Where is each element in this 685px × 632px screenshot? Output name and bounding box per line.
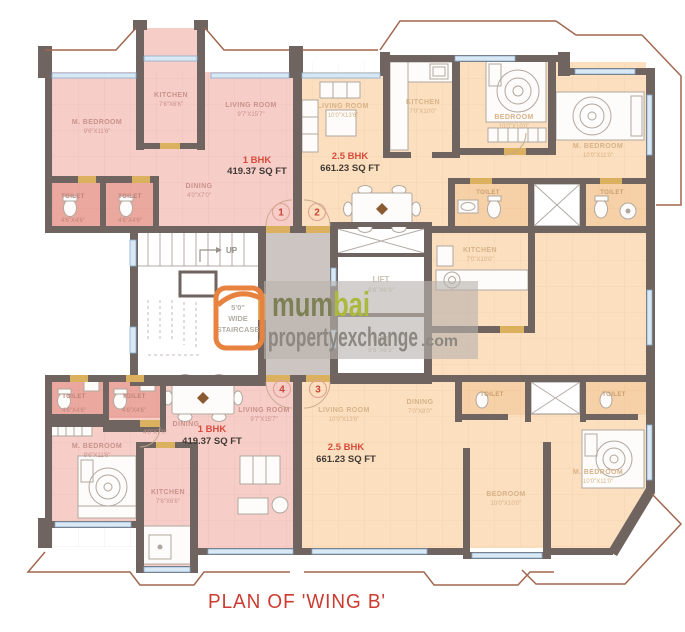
bed-flat4 bbox=[78, 456, 136, 518]
f2-type: 2.5 BHK bbox=[332, 151, 369, 162]
room-dim-f3-bedroom: 10'0"X10'0" bbox=[491, 501, 522, 507]
room-label-f4-living: LIVING ROOM bbox=[238, 407, 289, 414]
room-label-f3-toilet2: TOILET bbox=[602, 392, 626, 398]
room-label-f2-toilet2: TOILET bbox=[600, 190, 624, 196]
room-dim-f2-kitchen: 7'0"X10'0" bbox=[409, 109, 436, 115]
stair-label-2: WIDE bbox=[228, 314, 248, 323]
f1-area: 419.37 SQ FT bbox=[227, 166, 287, 177]
room-label-f3-toilet1: TOILET bbox=[480, 392, 504, 398]
floor-plan-svg: UP bbox=[0, 0, 685, 632]
room-dim-f4-toilet1: 4'6"X4'6" bbox=[62, 408, 86, 414]
room-dim-f1-kitchen: 7'6"X6'6" bbox=[159, 102, 183, 108]
up-label: UP bbox=[226, 246, 238, 255]
f4-type: 1 BHK bbox=[198, 424, 227, 435]
room-label-f4-dining: DINING bbox=[173, 421, 200, 428]
room-dim-f2-living: 10'0"X13'6" bbox=[328, 113, 359, 119]
floor-plan-page: UP bbox=[0, 0, 685, 632]
brand-name: mumbai bbox=[272, 286, 370, 324]
f3-area: 661.23 SQ FT bbox=[316, 454, 376, 465]
room-label-f3-kitchen: KITCHEN bbox=[463, 247, 497, 254]
room-label-f1-toilet1: TOILET bbox=[61, 194, 85, 200]
room-label-f2-bedroom: BEDROOM bbox=[494, 114, 533, 121]
room-dim-f2-bedroom: 10'0"X10'0" bbox=[499, 124, 530, 130]
flat-number-1: 1 bbox=[278, 208, 284, 219]
room-dim-f3-kitchen: 7'0"X10'0" bbox=[466, 257, 493, 263]
room-dim-f1-living: 9'7"X15'7" bbox=[237, 112, 264, 118]
bed-flat2-master bbox=[556, 92, 644, 140]
room-dim-f4-living: 9'7"X15'7" bbox=[250, 417, 277, 423]
room-label-f4-mbedroom: M. BEDROOM bbox=[72, 443, 122, 450]
room-label-f2-kitchen: KITCHEN bbox=[406, 99, 440, 106]
room-label-f3-bedroom: BEDROOM bbox=[486, 491, 525, 498]
room-dim-f2-mbedroom: 10'0"X11'0" bbox=[583, 153, 613, 159]
room-dim-f4-kitchen: 7'6"X6'6" bbox=[156, 499, 180, 505]
plan-title: PLAN OF 'WING B' bbox=[208, 591, 386, 613]
room-label-f4-kitchen: KITCHEN bbox=[151, 489, 185, 496]
room-label-f3-mbedroom: M. BEDROOM bbox=[573, 469, 623, 476]
room-label-f2-living: LIVING ROOM bbox=[317, 103, 368, 110]
room-dim-f1-dining: 4'0"X7'0" bbox=[187, 193, 211, 199]
flat-number-2: 2 bbox=[314, 208, 320, 219]
stair-label-1: 5'0" bbox=[231, 303, 245, 312]
flat-number-3: 3 bbox=[315, 385, 321, 396]
f4-area: 419.37 SQ FT bbox=[182, 436, 242, 447]
room-label-f3-dining: DINING bbox=[407, 399, 434, 406]
room-label-f4-toilet2: TOILET bbox=[122, 394, 146, 400]
brand-line2: propertyexchange bbox=[268, 322, 418, 352]
room-label-f2-toilet1: TOILET bbox=[476, 190, 500, 196]
room-label-f1-mbedroom: M. BEDROOM bbox=[72, 119, 122, 126]
stair-well bbox=[180, 272, 216, 296]
brand-suffix: .com bbox=[421, 333, 458, 350]
room-label-f1-kitchen: KITCHEN bbox=[154, 92, 188, 99]
room-dim-f4-dining: 4'0"X7'0" bbox=[143, 430, 167, 436]
room-dim-f3-dining: 7'0"X8'0" bbox=[408, 409, 432, 415]
room-dim-f1-mbedroom: 9'6"X11'6" bbox=[84, 129, 111, 135]
room-dim-f3-living: 10'0"X13'6" bbox=[329, 417, 360, 423]
room-dim-f4-mbedroom: 9'6"X11'6" bbox=[84, 453, 111, 459]
kitchen-platform-flat4 bbox=[142, 526, 192, 564]
room-dim-f3-mbedroom: 10'0"X11'0" bbox=[583, 479, 613, 485]
room-label-f4-toilet1: TOILET bbox=[62, 394, 86, 400]
room-label-f1-dining: DINING bbox=[186, 183, 213, 190]
f1-type: 1 BHK bbox=[243, 155, 272, 166]
room-dim-f1-toilet2: 4'6"X4'6" bbox=[118, 218, 142, 224]
stair-label-3: STAIRCASE bbox=[217, 325, 260, 334]
room-label-f1-living: LIVING ROOM bbox=[225, 102, 276, 109]
f3-type: 2.5 BHK bbox=[328, 442, 365, 453]
room-label-f3-living: LIVING ROOM bbox=[318, 407, 369, 414]
room-label-f1-toilet2: TOILET bbox=[118, 194, 142, 200]
flat-number-4: 4 bbox=[279, 385, 285, 396]
f2-area: 661.23 SQ FT bbox=[320, 163, 380, 174]
room-label-f2-mbedroom: M. BEDROOM bbox=[573, 143, 623, 150]
room-dim-f4-toilet2: 4'6"X4'6" bbox=[122, 408, 146, 414]
room-dim-f1-toilet1: 4'6"X4'6" bbox=[61, 218, 85, 224]
